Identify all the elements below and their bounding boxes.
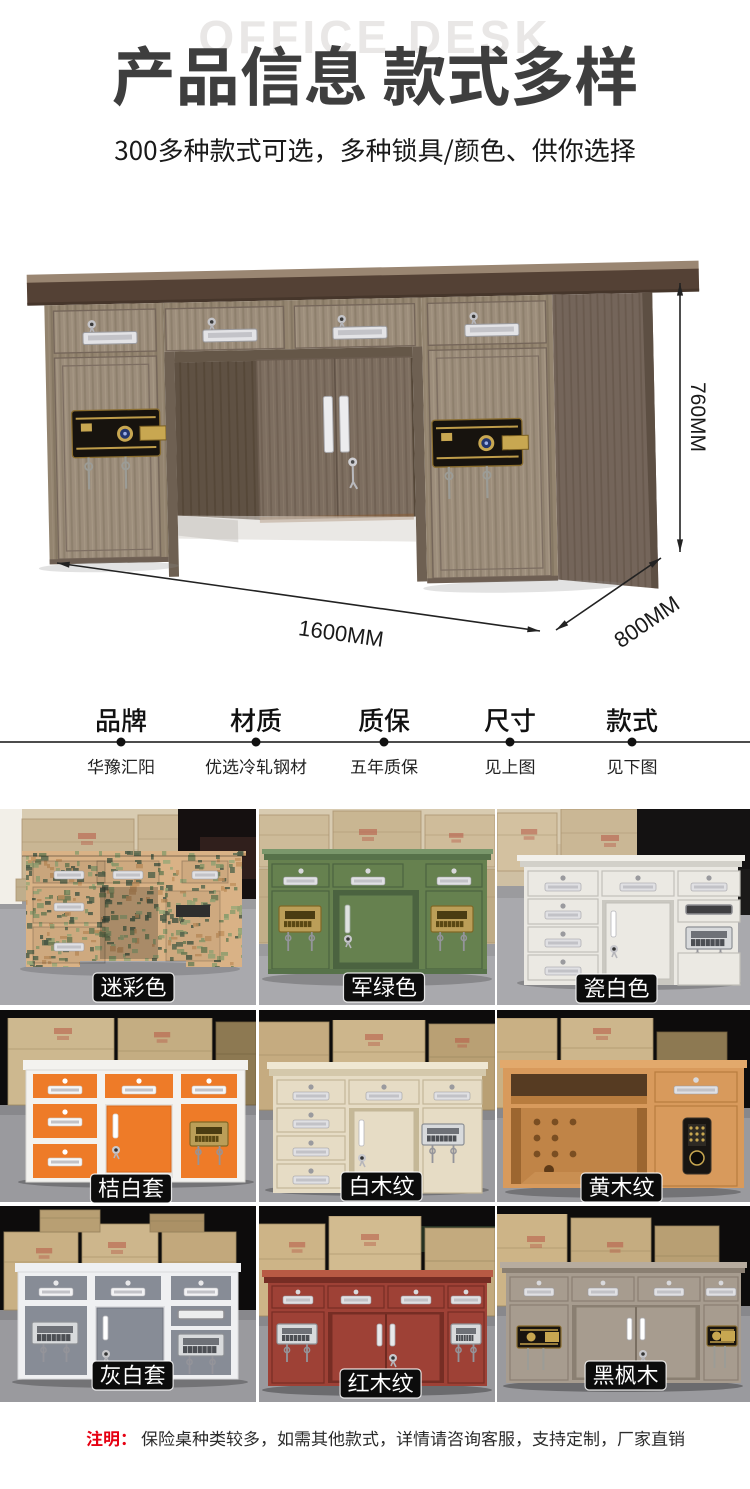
svg-text:760MM: 760MM bbox=[686, 382, 709, 452]
svg-text:800MM: 800MM bbox=[609, 591, 684, 653]
svg-text:1600MM: 1600MM bbox=[297, 615, 385, 652]
